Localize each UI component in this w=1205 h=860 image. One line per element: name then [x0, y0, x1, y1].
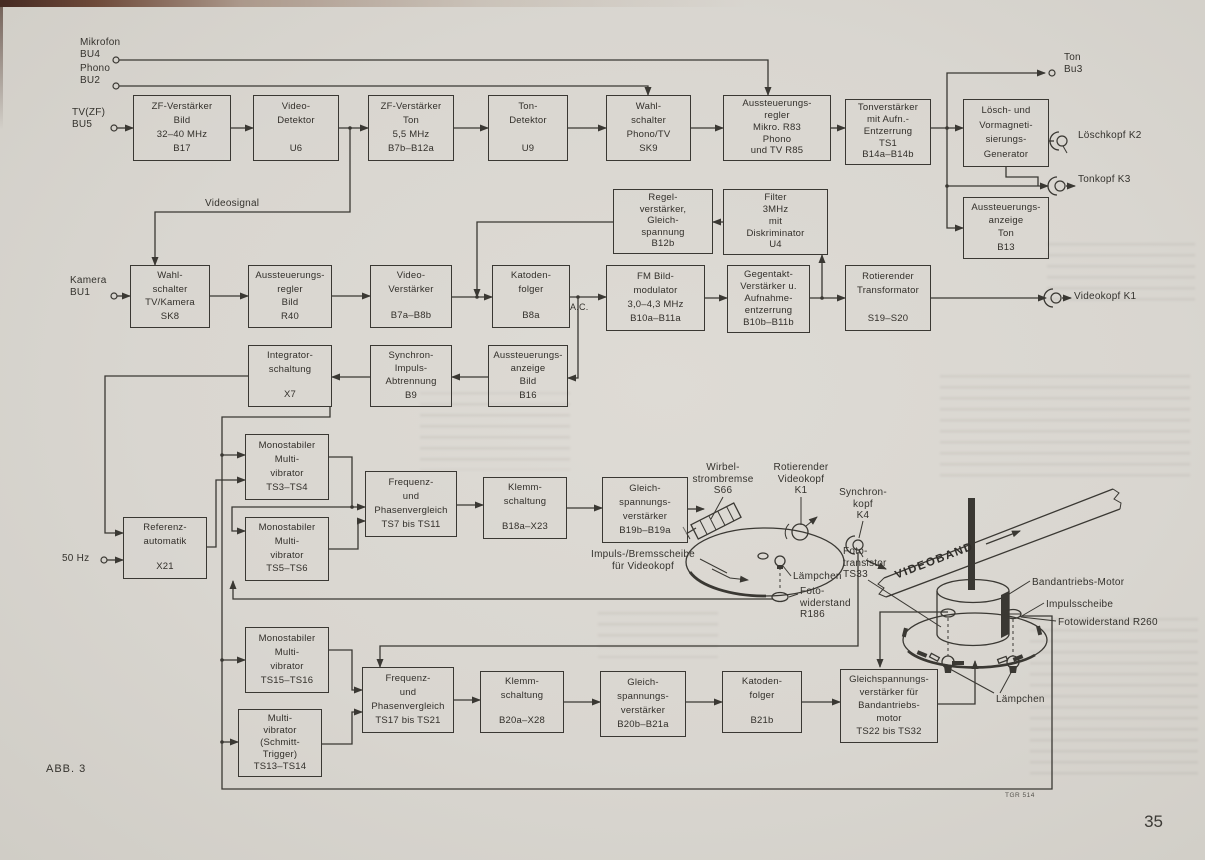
- tape-head-icon: [1057, 136, 1067, 146]
- block-b21b: Katoden-folgerB21b: [722, 671, 802, 733]
- terminal-label-bu5: TV(ZF)BU5: [72, 107, 105, 130]
- scanned-page: MikrofonBU4PhonoBU2TV(ZF)BU5KameraBU150 …: [0, 0, 1205, 860]
- leader-ts33: [868, 580, 941, 627]
- block-r83: Aussteuerungs-reglerMikro. R83Phonound T…: [723, 95, 831, 161]
- annotation-wirbel-: Wirbel-strombremseS66: [692, 462, 753, 497]
- junction-dot: [945, 126, 949, 130]
- junction-dot: [220, 658, 224, 662]
- block-ts3: MonostabilerMulti-vibratorTS3–TS4: [245, 434, 329, 500]
- block-b16: Aussteuerungs-anzeigeBildB16: [488, 345, 568, 407]
- ts15-ts17: [329, 650, 362, 690]
- annotation-rotierender: RotierenderVideokopfK1: [773, 462, 828, 497]
- block-diagram: MikrofonBU4PhonoBU2TV(ZF)BU5KameraBU150 …: [0, 0, 1205, 860]
- leader-laempchen-2b: [1000, 669, 1013, 693]
- block-b8a: Katoden-folgerB8a: [492, 265, 570, 328]
- block-b7a: Video-VerstärkerB7a–B8b: [370, 265, 452, 328]
- block-u6: Video-DetektorU6: [253, 95, 339, 161]
- block-ts13: Multi-vibrator(Schmitt-Trigger)TS13–TS14: [238, 709, 322, 777]
- block-b20a: Klemm-schaltungB20a–X28: [480, 671, 564, 733]
- annotation-videosignal: Videosignal: [205, 198, 259, 210]
- block-b20b: Gleich-spannungs-verstärkerB20b–B21a: [600, 671, 686, 737]
- block-ts15: MonostabilerMulti-vibratorTS15–TS16: [245, 627, 329, 693]
- block-b9: Synchron-Impuls-AbtrennungB9: [370, 345, 452, 407]
- block-sk9: Wahl-schalterPhono/TVSK9: [606, 95, 691, 161]
- block-b19b: Gleich-spannungs-verstärkerB19b–B19a: [602, 477, 688, 543]
- block-ts5: MonostabilerMulti-vibratorTS5–TS6: [245, 517, 329, 581]
- block-b18a: Klemm-schaltungB18a–X23: [483, 477, 567, 539]
- terminal-label-bu4: MikrofonBU4: [80, 37, 120, 60]
- junction-dot: [475, 295, 479, 299]
- photoresistor-r186-icon: [772, 593, 788, 602]
- leader-k4: [859, 521, 863, 538]
- block-b12b: Regel-verstärker,Gleich-spannungB12b: [613, 189, 713, 254]
- junction-dot: [820, 296, 824, 300]
- terminal-bu5: [111, 125, 117, 131]
- annotation-a-c-: A.C.: [570, 302, 589, 314]
- block-s19: RotierenderTransformatorS19–S20: [845, 265, 931, 331]
- terminal-bu2: [113, 83, 119, 89]
- phototransistor-ts33-icon: [941, 609, 955, 617]
- block-b13: Aussteuerungs-anzeigeTonB13: [963, 197, 1049, 259]
- bu4-to-r83: [119, 60, 768, 95]
- junction-dot: [576, 295, 580, 299]
- junction-dot: [350, 505, 354, 509]
- ts3-ts7: [329, 457, 365, 507]
- junction-dot: [945, 184, 949, 188]
- bu2-to-sk9: [119, 86, 648, 95]
- tape-head-icon: [1055, 181, 1065, 191]
- block-u4: Filter3MHzmitDiskriminatorU4: [723, 189, 828, 255]
- annotation-synchron-: Synchron-kopfK4: [839, 487, 887, 522]
- page-number: 35: [1144, 812, 1163, 832]
- block-ts7: Frequenz-undPhasenvergleichTS7 bis TS11: [365, 471, 457, 537]
- junction-dot: [348, 126, 352, 130]
- block-x7: Integrator-schaltungX7: [248, 345, 332, 407]
- leader-bremsscheibe: [700, 559, 727, 573]
- figure-label: ABB. 3: [46, 764, 86, 776]
- gen-to-tonkopf: [1006, 167, 1038, 186]
- terminal-label-bu2: PhonoBU2: [80, 63, 110, 86]
- terminal-bu3: [1049, 70, 1055, 76]
- annotation-lämpchen: Lämpchen: [793, 571, 842, 583]
- block-sk8: Wahl-schalterTV/KameraSK8: [130, 265, 210, 328]
- band-arrow: [986, 531, 1020, 544]
- tape-head-icon: [1048, 177, 1057, 195]
- plate-code: TGR 514: [1005, 790, 1035, 802]
- head-label-k1: Videokopf K1: [1074, 291, 1136, 303]
- block-ts22: Gleichspannungs-verstärker fürBandantrie…: [840, 669, 938, 743]
- terminal-label-bu3: TonBu3: [1064, 52, 1083, 75]
- block-b17: ZF-VerstärkerBild32–40 MHzB17: [133, 95, 231, 161]
- head-label-k2: Löschkopf K2: [1078, 130, 1142, 142]
- annotation-foto-: Foto-widerstandR186: [800, 586, 851, 621]
- r186-ts5: [233, 581, 773, 599]
- leader-motor: [1006, 581, 1030, 596]
- to-b13: [947, 128, 963, 228]
- block-b10b: Gegentakt-Verstärker u.Aufnahme-entzerru…: [727, 265, 810, 333]
- terminal-hz50: [101, 557, 107, 563]
- junction-dot: [220, 453, 224, 457]
- block-b10a: FM Bild-modulator3,0–4,3 MHzB10a–B11a: [606, 265, 705, 331]
- annotation-bandantriebs-motor: Bandantriebs-Motor: [1032, 577, 1124, 589]
- terminal-label-hz50: 50 Hz: [62, 553, 89, 565]
- leader-impulsscheibe: [1020, 603, 1044, 617]
- lamp-icon: [775, 556, 785, 566]
- leader-laempchen-1: [783, 566, 791, 576]
- block-x21: Referenz-automatikX21: [123, 517, 207, 579]
- junction-dot: [220, 740, 224, 744]
- terminal-label-bu1: KameraBU1: [70, 275, 107, 298]
- block-b7b: ZF-VerstärkerTon5,5 MHzB7b–B12a: [368, 95, 454, 161]
- tape-head-icon: [1063, 146, 1067, 153]
- annotation-lämpchen: Lämpchen: [996, 694, 1045, 706]
- head-label-k3: Tonkopf K3: [1078, 174, 1131, 186]
- leader-s66: [711, 497, 723, 519]
- annotation-fotowiderstand-r260: Fotowiderstand R260: [1058, 617, 1158, 629]
- block-u9: Ton-DetektorU9: [488, 95, 568, 161]
- leader-laempchen-2a: [950, 669, 994, 693]
- block-ts17: Frequenz-undPhasenvergleichTS17 bis TS21: [362, 667, 454, 733]
- tape-head-icon: [1051, 293, 1061, 303]
- block-gen: Lösch- undVormagneti-sierungs-Generator: [963, 99, 1049, 167]
- x21-ts3: [207, 480, 245, 547]
- block-ts1: Tonverstärkermit Aufn.-EntzerrungTS1B14a…: [845, 99, 931, 165]
- block-r40: Aussteuerungs-reglerBildR40: [248, 265, 332, 328]
- annotation-impuls-bremsscheibe: Impuls-/Bremsscheibefür Videokopf: [591, 549, 695, 572]
- annotation-foto-: Foto-transistorTS33: [843, 546, 887, 581]
- terminal-bu1: [111, 293, 117, 299]
- ts13-ts17: [322, 712, 362, 744]
- ts33-ts22: [880, 612, 948, 667]
- annotation-impulsscheibe: Impulsscheibe: [1046, 599, 1113, 611]
- ts5-ts7: [329, 521, 365, 549]
